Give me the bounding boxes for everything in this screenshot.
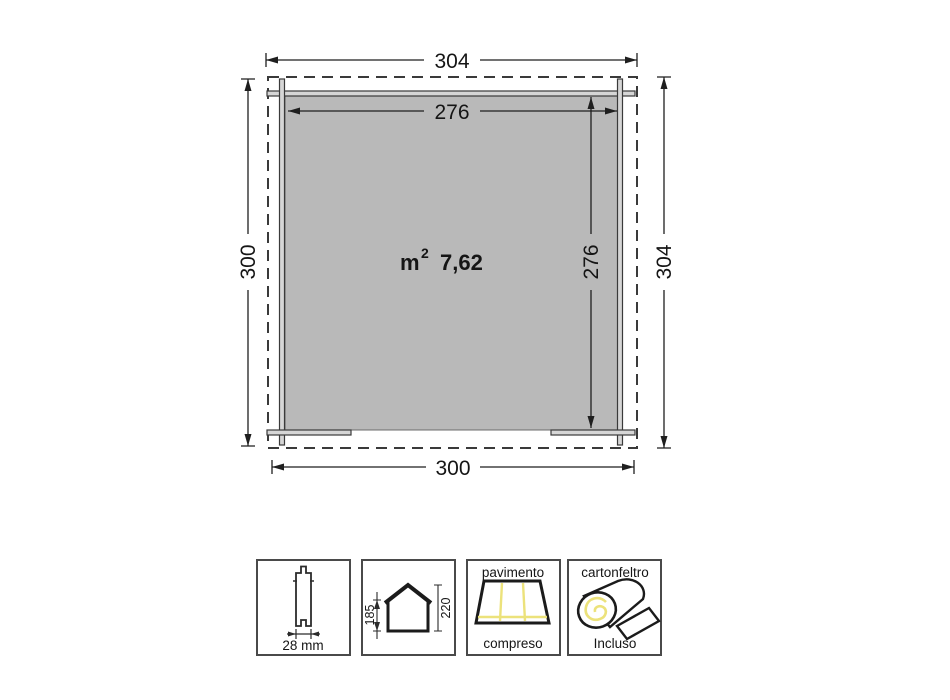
felt-label-top: cartonfeltro <box>581 565 649 580</box>
house-walls <box>388 602 428 631</box>
area-exponent: 2 <box>421 245 429 261</box>
legend-house: 185 220 <box>362 560 455 655</box>
dimension-wall-width: 300 <box>272 455 634 480</box>
plank-outline <box>296 567 311 627</box>
floor-label-top: pavimento <box>482 565 544 580</box>
dim-left-depth-label: 300 <box>237 244 260 279</box>
dim-inner-width-label: 276 <box>434 101 469 124</box>
plank-profile-icon <box>293 567 314 627</box>
dimension-left-depth: 300 <box>235 79 261 446</box>
legend: 28 mm 185 220 <box>257 560 661 655</box>
technical-drawing: 304 276 300 276 304 <box>0 0 950 700</box>
floor-plan: 304 276 300 276 304 <box>235 47 677 480</box>
dimension-roof-width: 304 <box>266 47 637 73</box>
legend-plank: 28 mm <box>257 560 350 655</box>
dim-wall-width-label: 300 <box>435 457 470 480</box>
wall-log-right <box>618 79 623 445</box>
felt-label-bottom: Incluso <box>594 636 637 651</box>
dim-inner-depth-label: 276 <box>580 244 603 279</box>
floor-icon <box>476 581 549 623</box>
house-eave-height-label: 185 <box>363 605 377 626</box>
drawing-page: 304 276 300 276 304 <box>0 0 950 700</box>
wall-log-bottom-right <box>551 430 635 435</box>
dim-roof-depth-label: 304 <box>653 244 676 279</box>
area-unit: m <box>400 250 420 275</box>
legend-floor: pavimento compreso <box>467 560 560 655</box>
dimension-roof-depth: 304 <box>651 77 677 448</box>
wall-log-top <box>267 91 635 96</box>
house-ridge-height-label: 220 <box>439 598 453 619</box>
plank-thickness-label: 28 mm <box>282 638 323 653</box>
floor-label-bottom: compreso <box>483 636 542 651</box>
area-label: m 2 7,62 <box>400 245 483 275</box>
wall-log-left <box>280 79 285 445</box>
dim-roof-width-label: 304 <box>434 50 469 73</box>
area-value: 7,62 <box>440 250 483 275</box>
legend-felt: cartonfeltro Incluso <box>568 560 661 655</box>
wall-log-bottom-left <box>267 430 351 435</box>
